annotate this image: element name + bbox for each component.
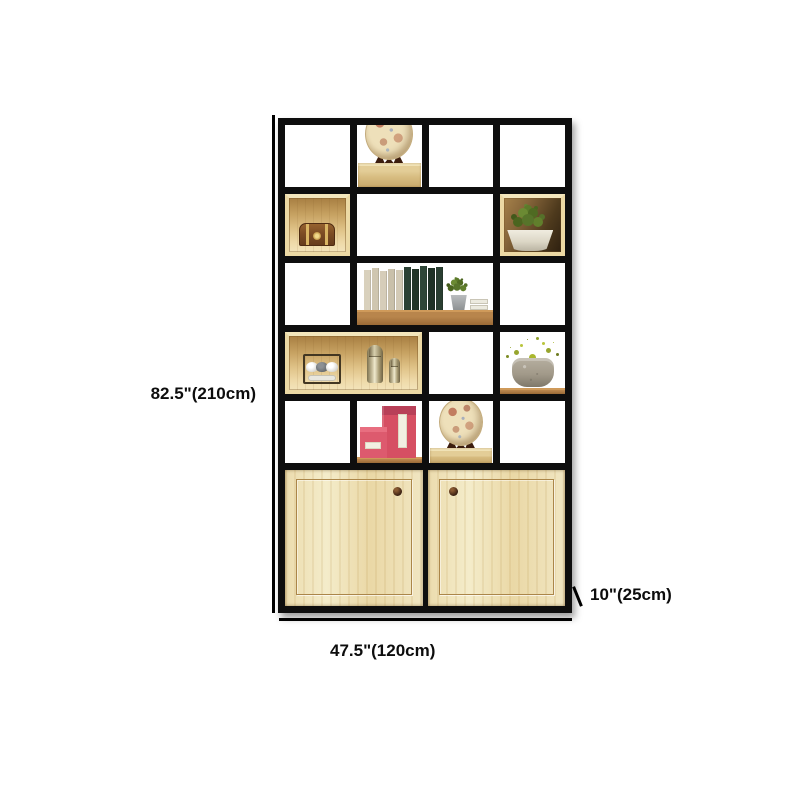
empty-cell: [285, 401, 350, 463]
plate-display-cell: [357, 125, 422, 187]
empty-cell: [285, 125, 350, 187]
box-label: [365, 442, 381, 449]
empty-cell: [500, 401, 565, 463]
door-panel-groove: [296, 479, 412, 595]
stone-pot: [512, 358, 554, 387]
white-book-stack: [470, 299, 488, 310]
gold-wood-box: [285, 332, 422, 394]
book-spine: [412, 269, 419, 310]
empty-cell: [429, 332, 494, 394]
book-spine: [420, 266, 427, 310]
book-row: [364, 266, 444, 310]
dish: [308, 375, 336, 381]
chest-box-cell: [285, 194, 350, 256]
green-plant-image: [522, 214, 534, 226]
empty-cell: [285, 263, 350, 325]
pink-gift-box-short: [360, 427, 387, 458]
book-spine: [404, 267, 411, 310]
book-spine: [380, 271, 387, 310]
chest-clasp: [313, 232, 321, 240]
door-panel-groove: [439, 479, 555, 595]
pink-boxes-cell: [357, 401, 422, 463]
book-spine: [388, 269, 395, 310]
book-spine: [428, 268, 435, 310]
shelf-row-4: [285, 332, 565, 394]
cocktail-shaker-small: [389, 358, 400, 383]
depth-dimension-label: 10"(25cm): [590, 585, 672, 605]
cabinet-door-right: [428, 470, 566, 606]
grey-pot: [449, 295, 469, 310]
plant-box-cell: [500, 194, 565, 256]
gold-wood-box: [285, 194, 350, 256]
depth-dimension-tick: [572, 586, 582, 606]
books-shelf-cell: [357, 263, 494, 325]
product-dimension-image: 82.5"(210cm) 47.5"(120cm) 10"(25cm): [0, 0, 800, 800]
book-spine: [436, 267, 443, 310]
empty-cell: [429, 125, 494, 187]
shelf-row-5: [285, 401, 565, 463]
wood-base-block: [358, 163, 421, 187]
wood-base-block: [430, 448, 493, 463]
book-flat: [470, 305, 488, 310]
small-plant-image: [453, 283, 460, 290]
decorative-plate-image: [365, 125, 413, 160]
cocktail-shaker-large: [367, 345, 383, 383]
white-bowl-pot: [507, 230, 553, 251]
barware-box-cell: [285, 332, 422, 394]
book-flat: [470, 299, 488, 304]
door-knob: [393, 487, 402, 496]
shelf-row-3: [285, 263, 565, 325]
empty-cell: [357, 194, 494, 256]
book-spine: [364, 270, 371, 310]
cabinet-door-left: [285, 470, 423, 606]
book-spine: [372, 268, 379, 310]
wood-plank: [500, 388, 565, 394]
shelf-row-2: [285, 194, 565, 256]
decorative-plate-image: [439, 401, 483, 446]
cabinet-base: [285, 470, 565, 606]
width-dimension-line: [279, 618, 572, 621]
height-dimension-line: [272, 115, 275, 613]
plate-display-cell: [429, 401, 494, 463]
berry-plant-cell: [500, 332, 565, 394]
cup-rack-image: [303, 354, 341, 384]
chest-strap: [306, 224, 309, 245]
door-knob: [449, 487, 458, 496]
width-dimension-label: 47.5"(120cm): [330, 641, 435, 661]
box-label: [398, 414, 407, 448]
height-dimension-label: 82.5"(210cm): [120, 384, 256, 404]
dark-wood-box: [500, 194, 565, 256]
empty-cell: [500, 125, 565, 187]
cup: [326, 362, 338, 372]
bookshelf: [278, 118, 572, 613]
empty-cell: [500, 263, 565, 325]
book-spine: [396, 270, 403, 310]
shelf-row-1: [285, 125, 565, 187]
treasure-chest-image: [299, 223, 335, 246]
wood-plank: [357, 310, 494, 325]
